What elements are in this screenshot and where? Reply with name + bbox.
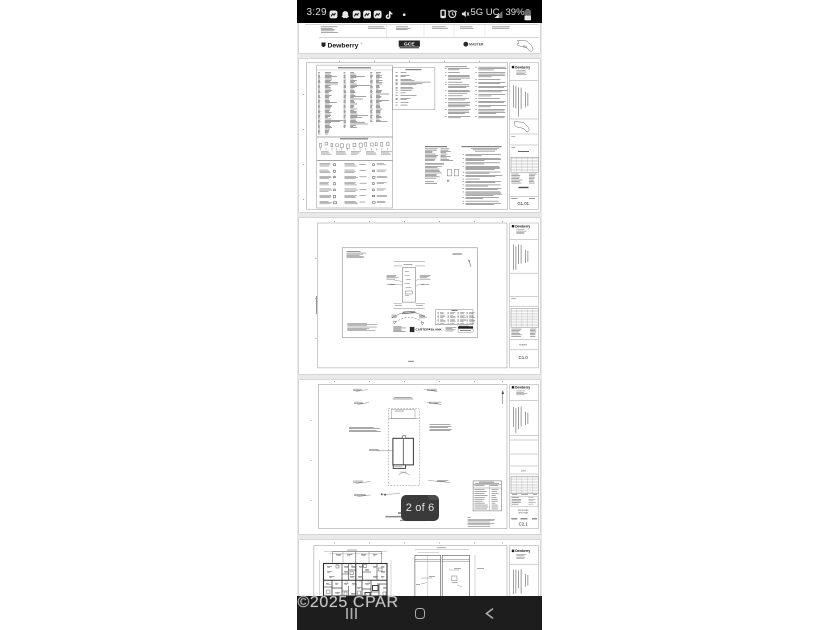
- svg-text:C1.0: C1.0: [519, 356, 529, 361]
- svg-text:MASTER: MASTER: [469, 43, 484, 47]
- svg-text:SITE PLAN: SITE PLAN: [519, 512, 529, 515]
- svg-text:CARTER: CARTER: [416, 328, 430, 332]
- svg-text:Lkld: Lkld: [521, 469, 526, 473]
- svg-text:GCE: GCE: [404, 42, 415, 48]
- svg-text:C2.1: C2.1: [519, 521, 529, 526]
- svg-text:BLANK: BLANK: [431, 328, 443, 332]
- svg-text:G1.01: G1.01: [518, 200, 530, 205]
- svg-text:SURVEY: SURVEY: [519, 345, 528, 347]
- svg-text:Dewberry: Dewberry: [515, 386, 530, 390]
- svg-text:Dewberry: Dewberry: [515, 549, 530, 553]
- svg-text:Dewberry: Dewberry: [515, 65, 530, 69]
- svg-text:Dewberry: Dewberry: [328, 43, 359, 50]
- svg-text:Fla: Fla: [523, 44, 527, 48]
- svg-text:Dewberry: Dewberry: [515, 225, 530, 229]
